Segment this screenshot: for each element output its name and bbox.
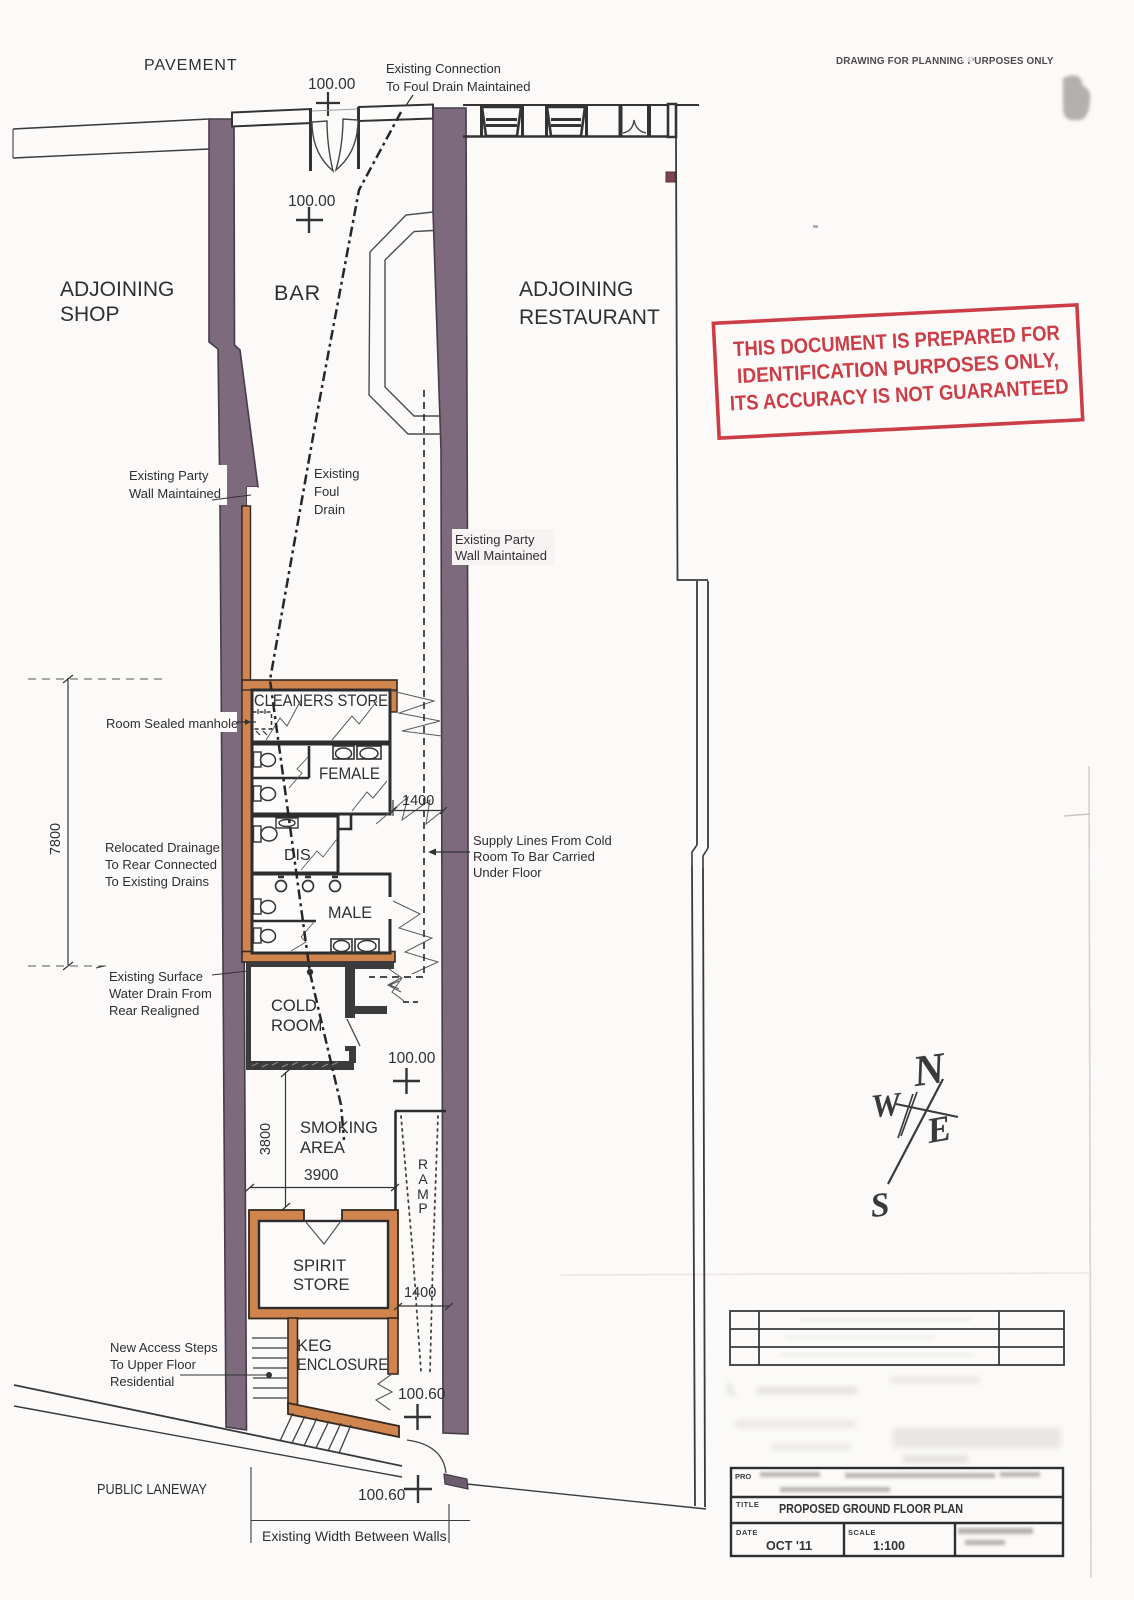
svg-text:To Upper Floor: To Upper Floor: [110, 1357, 197, 1372]
svg-text:DATE: DATE: [736, 1528, 758, 1537]
svg-text:Existing Party: Existing Party: [129, 468, 209, 483]
svg-text:Supply Lines From Cold: Supply Lines From Cold: [473, 833, 612, 848]
svg-text:AREA: AREA: [300, 1139, 345, 1157]
svg-text:Room To Bar Carried: Room To Bar Carried: [473, 849, 595, 864]
svg-text:1:100: 1:100: [873, 1539, 905, 1553]
svg-text:ROOM: ROOM: [271, 1017, 322, 1035]
svg-text:PAVEMENT: PAVEMENT: [144, 57, 238, 74]
svg-text:TITLE: TITLE: [736, 1500, 759, 1509]
svg-text:SHOP: SHOP: [60, 303, 120, 326]
svg-text:7800: 7800: [48, 823, 64, 855]
svg-text:SCALE: SCALE: [848, 1528, 876, 1537]
svg-text:Existing Width Between Walls: Existing Width Between Walls: [262, 1528, 447, 1544]
svg-text:Rear Realigned: Rear Realigned: [109, 1003, 199, 1018]
svg-text:Water Drain From: Water Drain From: [109, 986, 212, 1001]
svg-text:MALE: MALE: [328, 904, 372, 922]
svg-text:Wall Maintained: Wall Maintained: [129, 486, 221, 501]
svg-text:Drain: Drain: [314, 502, 345, 517]
svg-text:R: R: [418, 1156, 428, 1172]
svg-text:COLD: COLD: [271, 997, 317, 1015]
svg-text:OCT '11: OCT '11: [766, 1539, 812, 1553]
svg-text:Existing Surface: Existing Surface: [109, 969, 203, 984]
svg-text:A: A: [418, 1171, 428, 1187]
svg-text:Existing: Existing: [314, 466, 360, 481]
svg-text:ADJOINING: ADJOINING: [60, 278, 174, 301]
svg-text:PUBLIC LANEWAY: PUBLIC LANEWAY: [97, 1482, 207, 1498]
svg-text:Wall Maintained: Wall Maintained: [455, 548, 547, 563]
svg-text:Foul: Foul: [314, 484, 339, 499]
svg-text:Existing Connection: Existing Connection: [386, 61, 501, 76]
svg-text:Relocated Drainage: Relocated Drainage: [105, 840, 220, 855]
svg-text:ADJOINING: ADJOINING: [519, 278, 633, 301]
svg-text:STORE: STORE: [293, 1276, 350, 1294]
svg-text:Residential: Residential: [110, 1374, 174, 1389]
svg-text:3900: 3900: [304, 1167, 339, 1184]
svg-text:100.00: 100.00: [288, 193, 336, 210]
svg-text:RESTAURANT: RESTAURANT: [519, 306, 660, 329]
svg-text:BAR: BAR: [274, 281, 321, 305]
svg-text:DRAWING FOR PLANNING PURPOSES: DRAWING FOR PLANNING PURPOSES ONLY: [836, 56, 1054, 67]
svg-text:P: P: [418, 1200, 427, 1216]
svg-text:100.60: 100.60: [358, 1487, 406, 1504]
svg-text:Room Sealed manhole: Room Sealed manhole: [106, 716, 238, 731]
svg-text:SMOKING: SMOKING: [300, 1119, 378, 1137]
svg-text:Under Floor: Under Floor: [473, 865, 542, 880]
svg-text:3800: 3800: [258, 1123, 274, 1155]
svg-text:To Existing Drains: To Existing Drains: [105, 874, 210, 889]
svg-text:ENCLOSURE: ENCLOSURE: [297, 1356, 388, 1374]
svg-text:1400: 1400: [402, 793, 434, 809]
svg-text:Existing Party: Existing Party: [455, 532, 535, 547]
svg-text:FEMALE: FEMALE: [319, 765, 380, 783]
svg-text:DIS: DIS: [284, 847, 311, 864]
svg-text:To Rear Connected: To Rear Connected: [105, 857, 217, 872]
svg-text:100.00: 100.00: [388, 1050, 436, 1067]
svg-text:PRO: PRO: [735, 1472, 751, 1481]
svg-text:PROPOSED GROUND FLOOR PLAN: PROPOSED GROUND FLOOR PLAN: [779, 1501, 963, 1516]
svg-text:S: S: [869, 1186, 892, 1225]
svg-text:KEG: KEG: [297, 1337, 332, 1355]
svg-text:1400: 1400: [404, 1285, 436, 1301]
svg-text:SPIRIT: SPIRIT: [293, 1257, 346, 1275]
svg-text:100.60: 100.60: [398, 1386, 446, 1403]
svg-text:New Access Steps: New Access Steps: [110, 1340, 218, 1355]
svg-text:100.00: 100.00: [308, 76, 356, 93]
svg-text:To Foul Drain Maintained: To Foul Drain Maintained: [386, 79, 531, 94]
